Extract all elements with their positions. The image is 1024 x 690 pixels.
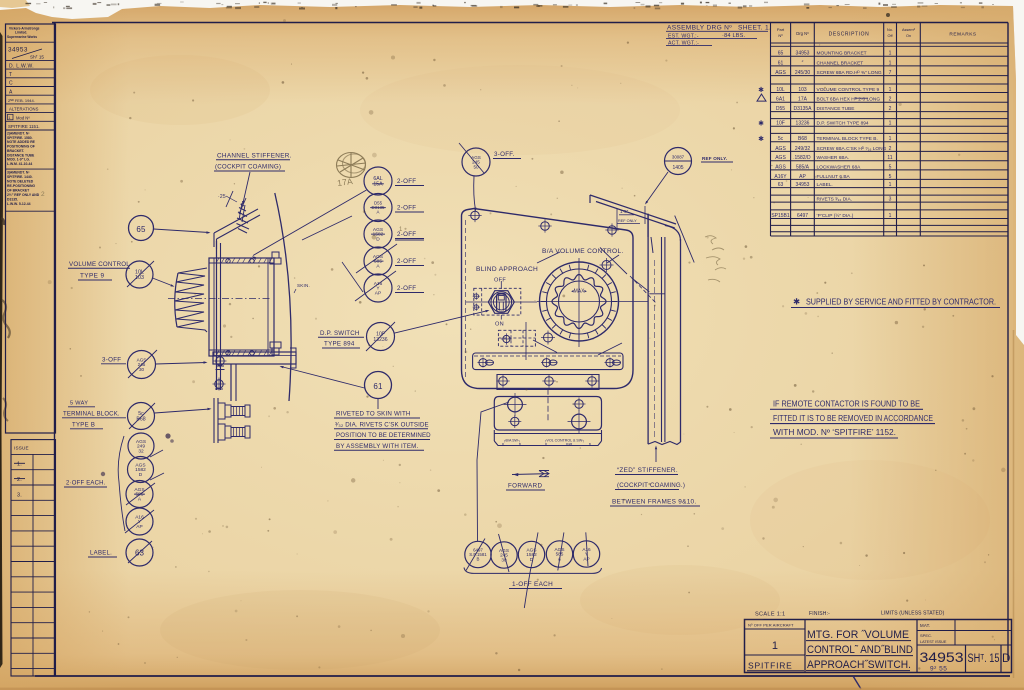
svg-text:1: 1	[889, 213, 892, 219]
svg-text:2½″ REF ONLY AND: 2½″ REF ONLY AND	[7, 193, 40, 197]
svg-text:BOLT 6BA HEX Hᴰ 2·0 LONG: BOLT 6BA HEX Hᴰ 2·0 LONG	[817, 97, 881, 103]
svg-text:Nº: Nº	[778, 33, 783, 38]
svg-text:C: C	[9, 81, 13, 87]
svg-text:B68: B68	[798, 136, 807, 142]
svg-text:D3135.: D3135.	[7, 197, 18, 201]
svg-text:A16Y: A16Y	[774, 174, 787, 180]
svg-text:TERMINAL BLOCK TYPE B.: TERMINAL BLOCK TYPE B.	[817, 136, 878, 142]
svg-text:34953: 34953	[796, 182, 810, 188]
svg-text:CHANNEL STIFFENER.: CHANNEL STIFFENER.	[217, 153, 292, 160]
svg-text:ON: ON	[495, 322, 504, 328]
svg-text:SKIN.: SKIN.	[297, 283, 310, 288]
svg-text:10L: 10L	[776, 87, 785, 93]
svg-text:REF ONLY.: REF ONLY.	[702, 156, 727, 161]
svg-text:BLIND APPROACH: BLIND APPROACH	[476, 266, 538, 273]
svg-text:LATEST ISSUE: LATEST ISSUE	[920, 640, 947, 644]
svg-text:SCREW 6BA.C’SK Hᴰ ⁷⁄₁₆ LONG: SCREW 6BA.C’SK Hᴰ ⁷⁄₁₆ LONG	[817, 146, 887, 152]
svg-text:″: ″	[802, 60, 804, 66]
svg-text:1: 1	[399, 227, 403, 233]
svg-text:585/A: 585/A	[796, 164, 810, 170]
svg-text:DESCRIPTION: DESCRIPTION	[829, 32, 870, 38]
svg-text:1405: 1405	[672, 165, 683, 171]
svg-text:Drg Nº: Drg Nº	[796, 31, 809, 36]
svg-text:7: 7	[889, 70, 892, 76]
svg-text:MAT.: MAT.	[920, 623, 930, 628]
svg-text:(COCKPIT COAMING): (COCKPIT COAMING)	[215, 164, 281, 171]
svg-text:5: 5	[889, 174, 892, 180]
svg-text:³⁄₃₂ DIA. RIVETS C’SK OUTSIDE: ³⁄₃₂ DIA. RIVETS C’SK OUTSIDE	[335, 421, 429, 428]
svg-text:VOLUME CONTROL: VOLUME CONTROL	[69, 261, 130, 268]
svg-text:ASSEMBLY DRG Nº: ASSEMBLY DRG Nº	[667, 25, 732, 32]
svg-text:10F: 10F	[776, 121, 785, 127]
svg-text:LABEL.: LABEL.	[90, 551, 112, 557]
svg-text:2.: 2.	[17, 477, 22, 483]
svg-text:3|AMENDT. Nº: 3|AMENDT. Nº	[7, 171, 30, 175]
svg-text:ALTERATIONS: ALTERATIONS	[9, 107, 39, 112]
svg-text:Part: Part	[777, 27, 785, 32]
svg-text:34953: 34953	[8, 47, 28, 54]
svg-text:D: D	[139, 472, 143, 478]
svg-text:50: 50	[473, 164, 479, 169]
svg-text:2: 2	[41, 191, 45, 198]
svg-text:5c: 5c	[778, 136, 784, 142]
svg-text:245/30: 245/30	[795, 70, 811, 76]
svg-text:1·5″: 1·5″	[620, 209, 629, 214]
svg-text:L.W.M. 41-10-44: L.W.M. 41-10-44	[7, 162, 32, 166]
svg-text:30087: 30087	[672, 154, 685, 159]
svg-text:AP: AP	[136, 524, 142, 530]
svg-text:11: 11	[887, 155, 892, 161]
svg-text:5 WAY: 5 WAY	[70, 401, 88, 407]
svg-text:SPITFIRE: SPITFIRE	[748, 661, 793, 671]
svg-text:SPITFIRE 1151.: SPITFIRE 1151.	[8, 124, 40, 129]
svg-text:DISTANCE TUBE: DISTANCE TUBE	[817, 106, 855, 112]
svg-text:1582/D: 1582/D	[794, 155, 811, 161]
svg-text:3-OFF: 3-OFF	[102, 357, 121, 364]
svg-text:2-OFF: 2-OFF	[397, 285, 416, 292]
svg-text:OFF: OFF	[494, 278, 506, 284]
svg-text:CHANNEL BRACKET: CHANNEL BRACKET	[817, 60, 864, 66]
svg-text:D.P. SWITCH TYPE 894: D.P. SWITCH TYPE 894	[817, 121, 869, 127]
svg-text:AP: AP	[375, 291, 381, 297]
svg-text:1: 1	[889, 51, 892, 57]
svg-text:OF BRACKET: OF BRACKET	[7, 188, 30, 192]
svg-text:SPEC.: SPEC.	[920, 633, 932, 638]
svg-text:3: 3	[889, 197, 892, 203]
svg-text:1: 1	[889, 136, 892, 142]
svg-text:3.: 3.	[17, 492, 22, 498]
svg-text:17A: 17A	[798, 97, 808, 103]
svg-text:TYPE B: TYPE B	[72, 423, 95, 429]
svg-text:✱: ✱	[793, 297, 800, 307]
svg-text:D3135A: D3135A	[793, 106, 812, 112]
svg-text:R&B: R&B	[566, 442, 572, 446]
svg-text:D.P. SWITCH: D.P. SWITCH	[320, 330, 360, 337]
svg-text:34953: 34953	[920, 649, 964, 665]
svg-text:L.W.W. 5-12-44: L.W.W. 5-12-44	[7, 202, 31, 206]
svg-text:APPROACH˝SWITCH.: APPROACH˝SWITCH.	[807, 659, 911, 671]
svg-text:T: T	[9, 72, 12, 78]
svg-text:LOCKWASHER 68A: LOCKWASHER 68A	[817, 164, 862, 170]
svg-text:2ᴺᴰ FEB. 1944.: 2ᴺᴰ FEB. 1944.	[8, 98, 35, 103]
svg-text:249/32: 249/32	[795, 146, 811, 152]
svg-text:IF REMOTE CONTACTOR IS FOUND T: IF REMOTE CONTACTOR IS FOUND TO BE	[773, 400, 920, 409]
svg-text:AGS: AGS	[775, 70, 786, 76]
svg-text:B: B	[477, 557, 480, 562]
svg-text:1: 1	[889, 60, 892, 66]
svg-text:9² 55: 9² 55	[930, 666, 947, 673]
svg-text:Supermarine Works: Supermarine Works	[7, 35, 37, 39]
svg-text:·25: ·25	[218, 194, 226, 200]
svg-text:POSITION TO BE DETERMINED: POSITION TO BE DETERMINED	[336, 432, 431, 439]
svg-text:30: 30	[139, 367, 145, 372]
svg-text:Nº OFF PER AIRCRAFT: Nº OFF PER AIRCRAFT	[748, 623, 794, 628]
svg-text:LIMITS (UNLESS STATED): LIMITS (UNLESS STATED)	[881, 611, 945, 617]
svg-text:FITTED IT IS TO BE REMOVED IN: FITTED IT IS TO BE REMOVED IN ACCORDANCE	[773, 414, 933, 423]
svg-text:REMARKS: REMARKS	[949, 32, 976, 38]
svg-text:SHEET. 1.: SHEET. 1.	[738, 25, 771, 32]
svg-text:D55: D55	[776, 106, 785, 112]
svg-text:D: D	[1002, 653, 1011, 665]
svg-text:✱: ✱	[758, 120, 764, 128]
svg-text:A: A	[377, 210, 380, 215]
svg-text:AP: AP	[583, 556, 589, 561]
svg-text:FULLNUT 6.BA: FULLNUT 6.BA	[817, 174, 851, 180]
svg-text:‘P’CLIP (½″ DIA.): ‘P’CLIP (½″ DIA.)	[817, 212, 854, 219]
svg-text:Assemᵈ: Assemᵈ	[902, 28, 916, 32]
svg-text:B: B	[519, 442, 521, 446]
svg-text:65: 65	[778, 51, 784, 57]
svg-text:REF ONLY: REF ONLY	[618, 219, 637, 223]
svg-text:BY ASSEMBLY WITH ITEM.: BY ASSEMBLY WITH ITEM.	[336, 443, 419, 450]
svg-text:61: 61	[778, 60, 784, 66]
svg-text:1-OFF EACH: 1-OFF EACH	[512, 581, 553, 588]
svg-text:Mod Nº: Mod Nº	[16, 115, 30, 120]
svg-text:1: 1	[889, 182, 892, 188]
svg-text:13236: 13236	[796, 121, 810, 127]
svg-text:1: 1	[772, 640, 778, 652]
svg-text:MTG. FOR ˝VOLUME: MTG. FOR ˝VOLUME	[807, 629, 909, 641]
svg-text:SPITFIRE. 1440.: SPITFIRE. 1440.	[7, 175, 33, 179]
svg-text:5: 5	[889, 164, 892, 170]
svg-text:32: 32	[138, 449, 144, 455]
svg-text:(COCKPIT COAMING.): (COCKPIT COAMING.)	[617, 482, 685, 489]
svg-text:AGS: AGS	[775, 164, 786, 170]
svg-text:1: 1	[889, 87, 892, 93]
svg-text:6A1: 6A1	[776, 97, 785, 103]
svg-text:RE-POSITIONING: RE-POSITIONING	[7, 184, 35, 188]
svg-text:1: 1	[889, 121, 892, 127]
svg-text:D: D	[376, 237, 380, 243]
svg-text:15A: 15A	[373, 181, 383, 187]
svg-text:SUPPLIED BY SERVICE AND FITTED: SUPPLIED BY SERVICE AND FITTED BY CONTRA…	[806, 298, 996, 307]
svg-text:SHᵀ. 15: SHᵀ. 15	[968, 653, 1000, 665]
svg-text:TYPE 894: TYPE 894	[324, 341, 355, 348]
svg-text:TERMINAL BLOCK.: TERMINAL BLOCK.	[63, 412, 120, 418]
svg-text:2-OFF: 2-OFF	[397, 205, 416, 212]
svg-text:LABEL.: LABEL.	[817, 182, 833, 188]
svg-text:MOUNTING BRACKET: MOUNTING BRACKET	[817, 51, 867, 57]
svg-text:61: 61	[373, 382, 383, 391]
svg-text:AGS: AGS	[775, 155, 786, 161]
svg-text:2·OFF EACH.: 2·OFF EACH.	[66, 481, 106, 487]
svg-text:2-OFF: 2-OFF	[397, 258, 416, 265]
svg-text:FORWARD: FORWARD	[508, 483, 543, 490]
svg-text:·84 LBS.: ·84 LBS.	[722, 33, 746, 39]
svg-text:D. L.W.W.: D. L.W.W.	[9, 64, 34, 70]
svg-text:RIVETED TO SKIN WITH: RIVETED TO SKIN WITH	[336, 411, 411, 418]
svg-text:On: On	[906, 34, 911, 38]
svg-text:6497: 6497	[797, 213, 808, 219]
svg-text:No.: No.	[887, 28, 893, 32]
svg-text:B/A VOLUME CONTROL.: B/A VOLUME CONTROL.	[542, 248, 624, 255]
svg-text:AP: AP	[799, 174, 806, 180]
svg-text:WASHER 6BA.: WASHER 6BA.	[817, 155, 850, 161]
svg-text:TYPE 9: TYPE 9	[80, 273, 104, 280]
svg-text:2: 2	[889, 97, 892, 103]
svg-text:103: 103	[798, 87, 807, 93]
svg-text:AGS: AGS	[775, 146, 786, 152]
svg-text:FINISH:-: FINISH:-	[809, 611, 830, 617]
svg-text:34953: 34953	[796, 51, 810, 57]
svg-text:1.: 1.	[17, 462, 22, 468]
svg-text:✱: ✱	[758, 135, 764, 143]
svg-text:“ZED” STIFFENER.: “ZED” STIFFENER.	[617, 467, 678, 474]
svg-text:65: 65	[136, 225, 146, 234]
svg-text:RIVETS ³⁄₃₂ DIA.: RIVETS ³⁄₃₂ DIA.	[817, 197, 853, 203]
svg-text:SP15B1: SP15B1	[771, 213, 790, 219]
svg-text:✱: ✱	[758, 86, 764, 94]
svg-text:A: A	[9, 89, 13, 95]
svg-text:2: 2	[889, 106, 892, 112]
svg-text:SCREW 6BA RD.Hᴰ ⅜″ LONG: SCREW 6BA RD.Hᴰ ⅜″ LONG	[817, 70, 882, 76]
svg-text:63: 63	[778, 182, 784, 188]
svg-text:2-OFF: 2-OFF	[397, 178, 416, 185]
svg-text:2: 2	[889, 146, 892, 152]
svg-text:R: R	[545, 442, 547, 446]
svg-text:ISSUE: ISSUE	[14, 446, 29, 451]
svg-text:CONTROL˜ AND˝BLIND: CONTROL˜ AND˝BLIND	[807, 644, 913, 656]
svg-text:B: B	[589, 442, 591, 446]
svg-text:R: R	[502, 442, 504, 446]
svg-text:Shᵀ 15: Shᵀ 15	[30, 55, 44, 60]
svg-text:WITH MOD. Nº ‘SPITFIRE’ 1152.: WITH MOD. Nº ‘SPITFIRE’ 1152.	[773, 428, 896, 437]
svg-text:NOTE DELETED: NOTE DELETED	[7, 180, 34, 184]
